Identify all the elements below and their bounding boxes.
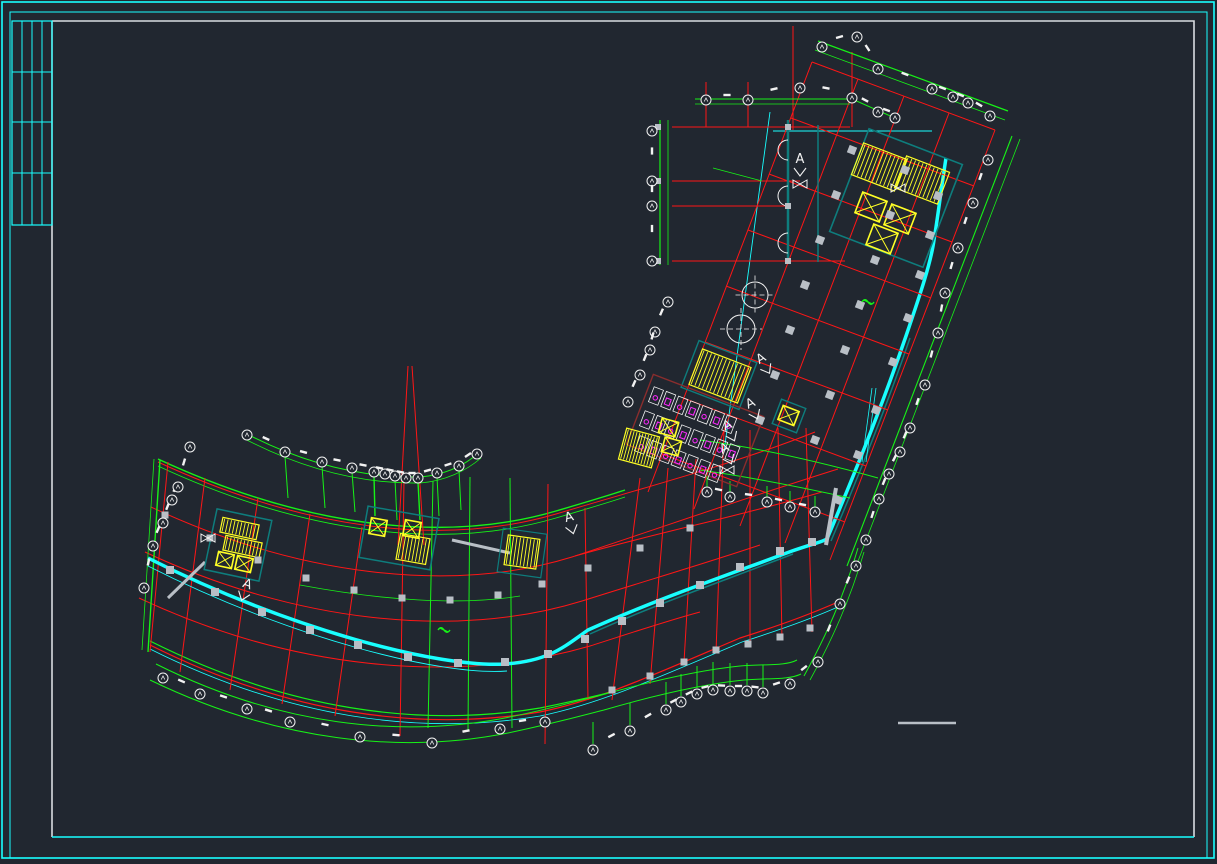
dim-text-blob bbox=[462, 729, 470, 733]
leader-line bbox=[713, 168, 762, 181]
grid-bubble-chain bbox=[588, 561, 861, 755]
column-marker bbox=[404, 653, 412, 661]
section-letter: A bbox=[240, 576, 254, 593]
column-marker bbox=[831, 190, 841, 200]
elevator-shaft bbox=[855, 192, 887, 222]
fixture bbox=[680, 431, 687, 439]
grid-line bbox=[585, 508, 588, 700]
stair-tread bbox=[246, 541, 249, 554]
outer-border bbox=[2, 2, 1214, 858]
stair-tread bbox=[239, 540, 242, 553]
stair-tread bbox=[534, 540, 538, 568]
column-row bbox=[609, 625, 814, 694]
stair-tread bbox=[524, 539, 528, 567]
fixture bbox=[664, 398, 671, 406]
dim-text-blob bbox=[822, 86, 830, 90]
stair-tread bbox=[239, 522, 242, 535]
wing-grid-line bbox=[748, 230, 931, 298]
fixture bbox=[692, 438, 698, 444]
fixture bbox=[699, 466, 706, 474]
column-marker bbox=[609, 687, 616, 694]
grid-bubble bbox=[890, 113, 900, 123]
stair-hatch bbox=[396, 534, 430, 565]
elevator-shaft bbox=[369, 518, 388, 537]
column-marker bbox=[870, 255, 880, 265]
dim-stub bbox=[352, 472, 355, 512]
column-marker bbox=[785, 325, 795, 335]
column-marker bbox=[815, 235, 825, 245]
dim-text-blob bbox=[262, 436, 270, 441]
grid-bubble bbox=[940, 288, 950, 298]
band-end-wall bbox=[142, 459, 154, 650]
grid-bubble bbox=[813, 657, 823, 667]
column-marker bbox=[696, 581, 704, 589]
grid-bubble bbox=[661, 705, 671, 715]
dim-text-blob bbox=[836, 35, 844, 39]
column-marker bbox=[855, 300, 865, 310]
cad-viewport[interactable]: AAAAAAA bbox=[0, 0, 1217, 864]
column-marker bbox=[785, 258, 791, 264]
cad-drawing-canvas[interactable]: AAAAAAA bbox=[0, 0, 1217, 864]
dim-text-blob bbox=[178, 678, 186, 683]
dim-text-blob bbox=[651, 185, 653, 192]
stair-tread bbox=[225, 519, 228, 532]
dim-text-blob bbox=[651, 147, 653, 154]
wall-teal bbox=[831, 338, 910, 541]
column-marker bbox=[810, 435, 820, 445]
column-row bbox=[655, 124, 791, 264]
column-marker bbox=[501, 658, 509, 666]
stair-tread bbox=[249, 525, 252, 538]
column-marker bbox=[800, 280, 810, 290]
stair-tread bbox=[408, 537, 412, 561]
column-marker bbox=[637, 545, 644, 552]
grid-bubble bbox=[158, 673, 168, 683]
grid-line bbox=[650, 468, 668, 684]
column-marker bbox=[399, 595, 406, 602]
grid-bubble bbox=[647, 201, 657, 211]
fixture bbox=[701, 414, 707, 420]
column-marker bbox=[495, 592, 502, 599]
grid-line bbox=[716, 430, 724, 652]
dim-text-blob bbox=[845, 576, 850, 584]
grid-bubble bbox=[195, 689, 205, 699]
stair-tread bbox=[256, 543, 259, 556]
stall bbox=[700, 434, 715, 453]
door-swing bbox=[778, 140, 788, 160]
dim-text-blob bbox=[220, 694, 228, 698]
dim-text-blob bbox=[659, 308, 664, 316]
grid-line bbox=[400, 480, 404, 736]
column-marker bbox=[306, 626, 314, 634]
grid-bubble bbox=[725, 492, 735, 502]
column-marker bbox=[303, 575, 310, 582]
column-marker bbox=[447, 597, 454, 604]
elevator-shaft bbox=[216, 551, 235, 568]
grid-bubble bbox=[139, 583, 149, 593]
dim-text-blob bbox=[978, 173, 983, 181]
column-marker bbox=[162, 512, 169, 519]
partition-line bbox=[510, 478, 512, 728]
dim-text-blob bbox=[651, 225, 653, 232]
stair-tread bbox=[412, 537, 416, 561]
grid-bubble bbox=[635, 370, 645, 380]
partition-arc bbox=[300, 585, 520, 601]
stair-tread bbox=[527, 539, 531, 567]
grid-bubble-chain bbox=[647, 126, 657, 266]
dim-text-blob bbox=[644, 713, 651, 719]
dim-text-blob bbox=[718, 684, 725, 687]
dim-text-blob bbox=[608, 733, 616, 738]
stair-tread bbox=[229, 520, 232, 533]
grid-bubble-chain bbox=[701, 83, 900, 123]
door-symbol bbox=[891, 184, 905, 192]
dim-text-blob bbox=[865, 44, 871, 51]
grid-bubble bbox=[817, 42, 827, 52]
grid-bubble bbox=[280, 447, 290, 457]
stair-tread bbox=[405, 536, 409, 560]
grid-bubble bbox=[985, 111, 995, 121]
column-marker bbox=[166, 566, 174, 574]
grid-line bbox=[778, 428, 782, 640]
grid-bubble bbox=[401, 473, 411, 483]
grid-bubble bbox=[968, 198, 978, 208]
dim-stub bbox=[322, 466, 325, 508]
grid-bubble-chain bbox=[242, 430, 482, 483]
section-letter: A bbox=[796, 152, 805, 167]
grid-bubble bbox=[432, 468, 442, 478]
wall-gray bbox=[826, 488, 836, 545]
dim-chain bbox=[243, 438, 481, 483]
dim-text-blob bbox=[735, 685, 742, 687]
grid-bubble bbox=[647, 256, 657, 266]
dim-stub bbox=[395, 480, 397, 520]
column-marker bbox=[713, 647, 720, 654]
grid-bubble bbox=[785, 679, 795, 689]
fixture bbox=[643, 419, 649, 425]
elevator-shaft bbox=[235, 555, 254, 572]
partition-line bbox=[468, 477, 470, 731]
grid-bubble bbox=[847, 93, 857, 103]
stair-tread bbox=[513, 537, 517, 565]
dim-text-blob bbox=[882, 478, 887, 486]
stair-tread bbox=[232, 521, 235, 534]
dim-stub bbox=[459, 470, 461, 510]
grid-bubble bbox=[692, 689, 702, 699]
band-wall bbox=[150, 641, 612, 716]
grid-bubble bbox=[701, 95, 711, 105]
column-marker bbox=[656, 599, 664, 607]
dim-text-blob bbox=[929, 350, 933, 358]
dim-stub bbox=[374, 476, 375, 516]
elevator-shaft bbox=[658, 418, 678, 437]
dim-text-blob bbox=[333, 458, 341, 462]
column-marker bbox=[785, 124, 791, 130]
section-letter: A bbox=[717, 440, 731, 457]
grid-bubble bbox=[963, 98, 973, 108]
stall bbox=[661, 391, 676, 410]
dim-text-blob bbox=[745, 493, 752, 496]
column-marker bbox=[687, 525, 694, 532]
dim-stub bbox=[437, 477, 439, 516]
grid-bubble bbox=[953, 243, 963, 253]
grid-line bbox=[806, 428, 812, 632]
grid-line bbox=[545, 484, 548, 744]
column-marker bbox=[211, 588, 219, 596]
wing-grid-line bbox=[740, 96, 904, 526]
dim-chain bbox=[695, 99, 895, 118]
crosshair-symbol bbox=[720, 308, 762, 350]
dim-text-blob bbox=[949, 262, 953, 270]
column-marker bbox=[840, 345, 850, 355]
grid-bubble bbox=[948, 92, 958, 102]
sheet-frame bbox=[52, 21, 1194, 837]
dim-text-blob bbox=[870, 511, 874, 519]
grid-bubble-chain bbox=[861, 155, 993, 545]
stair-tread bbox=[506, 536, 510, 564]
stair-tread bbox=[246, 524, 249, 537]
column-marker bbox=[776, 547, 784, 555]
column-marker bbox=[825, 390, 835, 400]
stair-tread bbox=[252, 543, 255, 556]
grid-bubble bbox=[625, 726, 635, 736]
wing-grid-line bbox=[785, 113, 949, 543]
grid-bubble bbox=[495, 724, 505, 734]
column-marker bbox=[618, 617, 626, 625]
grid-bubble bbox=[927, 84, 937, 94]
grid-bubble bbox=[242, 704, 252, 714]
grid-bubble bbox=[647, 176, 657, 186]
grid-bubble bbox=[708, 685, 718, 695]
grid-bubble bbox=[647, 126, 657, 136]
dim-text-blob bbox=[883, 108, 891, 113]
dim-text-blob bbox=[723, 94, 730, 96]
grid-bubble bbox=[742, 686, 752, 696]
dim-text-blob bbox=[827, 624, 832, 632]
dim-chain bbox=[818, 41, 1008, 111]
grid-line bbox=[282, 514, 310, 704]
elevator-shaft bbox=[778, 405, 799, 425]
grid-bubble bbox=[810, 507, 820, 517]
dim-text-blob bbox=[182, 458, 186, 466]
stair-tread bbox=[520, 538, 524, 566]
dim-stub bbox=[285, 456, 288, 498]
dim-text-blob bbox=[800, 665, 807, 671]
grid-bubble bbox=[861, 535, 871, 545]
dim-text-blob bbox=[424, 468, 432, 472]
dim-text-blob bbox=[770, 87, 778, 91]
grid-bubble bbox=[317, 457, 327, 467]
band-end-wall bbox=[148, 460, 160, 652]
column-marker bbox=[785, 203, 791, 209]
grid-bubble bbox=[983, 155, 993, 165]
grid-bubble bbox=[588, 745, 598, 755]
stair-tread bbox=[530, 540, 534, 568]
column-marker bbox=[581, 635, 589, 643]
dim-chain bbox=[815, 50, 1005, 120]
dim-text-blob bbox=[444, 462, 452, 466]
dim-chain bbox=[804, 548, 858, 676]
grid-bubble bbox=[158, 518, 168, 528]
grid-bubble bbox=[795, 83, 805, 93]
band-arc bbox=[158, 432, 815, 530]
column-marker bbox=[585, 565, 592, 572]
section-letter: A bbox=[720, 417, 734, 434]
stair-tread bbox=[242, 540, 245, 553]
dim-text-blob bbox=[643, 354, 648, 362]
stall bbox=[685, 401, 700, 420]
column-marker bbox=[255, 557, 262, 564]
dim-text-blob bbox=[265, 708, 273, 712]
column-marker bbox=[745, 641, 752, 648]
column-marker bbox=[808, 538, 816, 546]
grid-bubble bbox=[920, 380, 930, 390]
grid-line bbox=[612, 478, 640, 700]
stair-tread bbox=[415, 538, 419, 562]
dim-text-blob bbox=[773, 681, 781, 686]
elevator-x bbox=[855, 192, 887, 222]
grid-bubble bbox=[873, 107, 883, 117]
wing-grid-line bbox=[769, 174, 952, 242]
grid-bubble bbox=[413, 473, 423, 483]
grid-bubble bbox=[702, 487, 712, 497]
dim-text-blob bbox=[359, 463, 367, 467]
grid-line bbox=[684, 459, 696, 662]
column-marker bbox=[354, 641, 362, 649]
grid-bubble bbox=[173, 482, 183, 492]
green-annotation bbox=[438, 628, 450, 633]
section-letter: A bbox=[563, 509, 576, 526]
stair-tread bbox=[236, 522, 239, 535]
dim-text-blob bbox=[751, 685, 758, 688]
column-marker bbox=[770, 370, 780, 380]
dim-text-blob bbox=[715, 488, 723, 492]
grid-bubble bbox=[874, 494, 884, 504]
grid-bubble bbox=[785, 502, 795, 512]
fixture bbox=[704, 441, 711, 449]
grid-bubble-chain bbox=[158, 673, 550, 748]
grid-bubble bbox=[540, 717, 550, 727]
grid-bubble bbox=[852, 32, 862, 42]
grid-bubble-chain bbox=[817, 32, 995, 121]
curtain-wall-cyan-thin bbox=[862, 388, 872, 462]
grid-bubble bbox=[285, 717, 295, 727]
fixture bbox=[713, 417, 720, 425]
grid-bubble-chain bbox=[623, 297, 673, 407]
grid-bubble bbox=[873, 64, 883, 74]
grid-line bbox=[412, 366, 424, 545]
grid-bubble bbox=[355, 732, 365, 742]
grid-bubble bbox=[758, 688, 768, 698]
dim-text-blob bbox=[940, 304, 944, 312]
grid-bubble bbox=[884, 469, 894, 479]
stair-hatch bbox=[618, 428, 659, 468]
grid-bubble bbox=[835, 599, 845, 609]
section-arrow bbox=[565, 524, 579, 535]
dim-text-blob bbox=[300, 450, 308, 454]
grid-line bbox=[150, 462, 168, 652]
grid-bubble bbox=[905, 423, 915, 433]
grid-bubble bbox=[347, 463, 357, 473]
grid-bubble bbox=[762, 497, 772, 507]
column-marker bbox=[736, 563, 744, 571]
grid-bubble bbox=[623, 397, 633, 407]
stair-tread bbox=[243, 523, 246, 536]
column-marker bbox=[258, 608, 266, 616]
column-marker bbox=[454, 659, 462, 667]
dim-text-blob bbox=[392, 734, 399, 737]
dim-text-blob bbox=[901, 72, 909, 77]
grid-bubble bbox=[743, 95, 753, 105]
grid-bubble bbox=[851, 561, 861, 571]
fixture bbox=[689, 407, 696, 415]
column-marker bbox=[847, 145, 857, 155]
column-marker bbox=[777, 634, 784, 641]
stair-tread bbox=[517, 538, 521, 566]
stall bbox=[695, 459, 710, 478]
column-marker bbox=[544, 650, 552, 658]
grid-bubble bbox=[454, 461, 464, 471]
column-marker bbox=[539, 581, 546, 588]
grid-bubble bbox=[663, 297, 673, 307]
grid-line bbox=[335, 527, 362, 716]
column-marker bbox=[351, 587, 358, 594]
stair-tread bbox=[419, 539, 423, 563]
grid-bubble bbox=[148, 541, 158, 551]
dim-text-blob bbox=[861, 97, 868, 103]
wing-grid-line bbox=[726, 286, 909, 354]
grid-bubble bbox=[472, 449, 482, 459]
section-arrow bbox=[794, 168, 806, 176]
band-arc bbox=[150, 602, 838, 720]
grid-bubble bbox=[167, 495, 177, 505]
grid-bubble bbox=[645, 345, 655, 355]
dim-text-blob bbox=[975, 102, 982, 108]
grid-bubble bbox=[242, 430, 252, 440]
grid-bubble bbox=[185, 442, 195, 452]
fixture bbox=[652, 395, 658, 401]
dim-text-blob bbox=[464, 452, 471, 458]
fixture bbox=[677, 404, 683, 410]
elevator-x bbox=[778, 405, 799, 425]
grid-bubble bbox=[725, 686, 735, 696]
dim-text-blob bbox=[321, 723, 329, 727]
dim-text-blob bbox=[963, 217, 968, 225]
grid-bubble bbox=[427, 738, 437, 748]
section-marker-a: A bbox=[794, 152, 806, 176]
stair-tread bbox=[402, 536, 406, 560]
column-marker bbox=[681, 659, 688, 666]
column-marker bbox=[807, 625, 814, 632]
grid-line bbox=[230, 498, 258, 690]
grid-bubble bbox=[933, 328, 943, 338]
grid-bubble-chain bbox=[702, 487, 820, 517]
outer-border-inner bbox=[10, 12, 1207, 858]
grid-bubble bbox=[676, 697, 686, 707]
column-marker bbox=[647, 673, 654, 680]
section-marker-a: A bbox=[561, 509, 579, 535]
dim-text-blob bbox=[631, 380, 636, 388]
